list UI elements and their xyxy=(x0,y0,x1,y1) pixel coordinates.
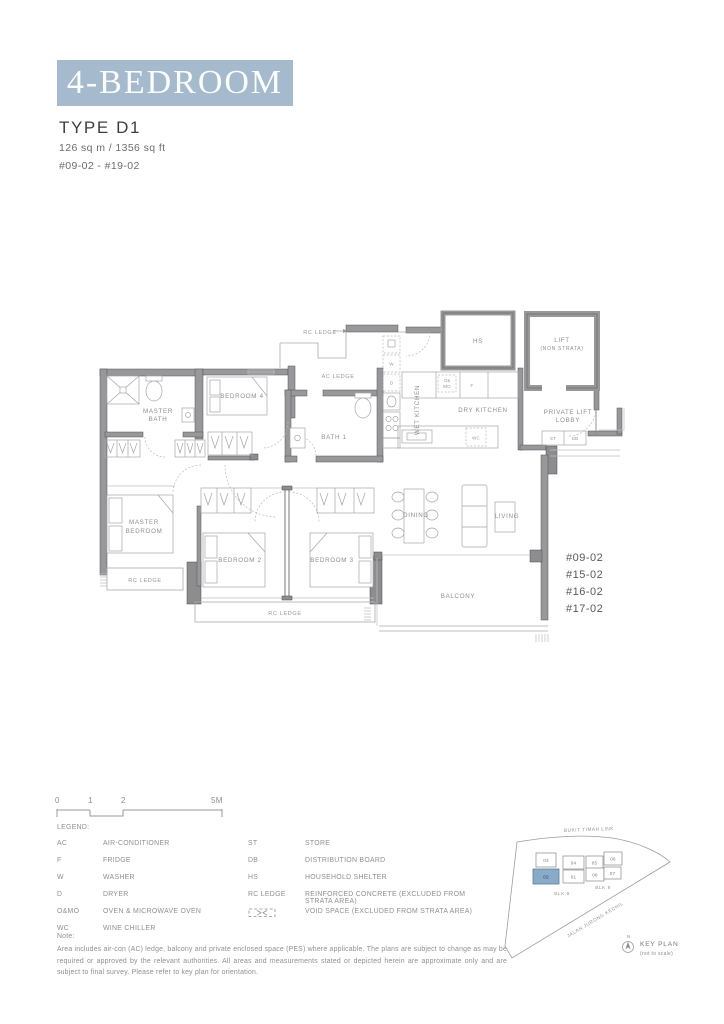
svg-text:02: 02 xyxy=(543,875,549,880)
label-dryer: D xyxy=(390,381,393,386)
label-bedroom2: BEDROOM 2 xyxy=(218,557,261,564)
label-rc-ledge-left: RC LEDGE xyxy=(128,578,161,584)
label-wet-kitchen: WET KITCHEN xyxy=(414,385,421,435)
label-dry-kitchen: DRY KITCHEN xyxy=(458,407,507,414)
scale-1: 1 xyxy=(88,796,93,805)
wet-kitchen-appliances xyxy=(383,336,400,448)
type-title: TYPE D1 xyxy=(59,118,141,138)
north-label: N xyxy=(627,934,631,940)
legend-row: DBDISTRIBUTION BOARD xyxy=(248,857,488,874)
site-boundary xyxy=(505,836,670,958)
hatch-bedroom3 xyxy=(364,608,371,620)
label-store: ST xyxy=(550,436,556,441)
label-bedroom3: BEDROOM 3 xyxy=(310,557,353,564)
basin-icon xyxy=(182,408,194,422)
svg-text:#16-02: #16-02 xyxy=(566,586,603,598)
label-balcony: BALCONY xyxy=(441,593,475,600)
label-bedroom4: BEDROOM 4 xyxy=(220,393,263,400)
lift-shaft xyxy=(527,314,597,392)
note: Note: Area includes air-con (AC) ledge, … xyxy=(57,931,507,979)
svg-text:#15-02: #15-02 xyxy=(566,569,603,581)
scale-0: 0 xyxy=(55,796,60,805)
floor-plan: MASTER BATH BEDROOM 4 BATH 1 WET KITCHEN… xyxy=(80,300,660,660)
key-plan: BUKIT TIMAH LINK JALAN JURONG KECHIL 03 … xyxy=(492,800,722,986)
toilet-icon xyxy=(355,398,371,418)
label-hs: HS xyxy=(473,338,483,345)
svg-text:#17-02: #17-02 xyxy=(566,603,603,615)
lift-door-gap xyxy=(542,384,566,392)
basin-icon xyxy=(290,428,305,448)
legend-row: VOID SPACE (EXCLUDED FROM STRATA AREA) xyxy=(248,908,488,925)
svg-text:04: 04 xyxy=(571,861,577,866)
label-bath1: BATH 1 xyxy=(321,434,346,441)
legend-right-column: STSTORE DBDISTRIBUTION BOARD HSHOUSEHOLD… xyxy=(248,840,488,925)
area-text: 126 sq m / 1356 sq ft xyxy=(59,142,165,154)
label-rc-ledge-bottom: RC LEDGE xyxy=(268,611,301,617)
legend-row: HSHOUSEHOLD SHELTER xyxy=(248,874,488,891)
note-body: Area includes air-con (AC) ledge, balcon… xyxy=(57,944,507,978)
svg-text:07: 07 xyxy=(610,871,616,876)
legend-row: DDRYER xyxy=(57,891,242,908)
label-ac-ledge: AC LEDGE xyxy=(321,374,354,380)
legend-row: ACAIR-CONDITIONER xyxy=(57,840,242,857)
svg-text:#09-02: #09-02 xyxy=(566,552,603,564)
toilet-icon xyxy=(146,381,162,401)
svg-text:LOBBY: LOBBY xyxy=(556,417,580,424)
label-wine-chiller: WC xyxy=(472,436,480,441)
stack-unit-numbers: #09-02 #15-02 #16-02 #17-02 xyxy=(566,552,603,615)
bedroom4-furniture xyxy=(207,377,267,455)
label-washer: W xyxy=(389,362,394,367)
units-range-text: #09-02 - #19-02 xyxy=(59,160,140,172)
label-fridge: F xyxy=(471,383,474,388)
sofa-icon xyxy=(462,485,487,547)
svg-text:08: 08 xyxy=(592,873,598,878)
svg-text:01: 01 xyxy=(571,875,577,880)
svg-text:(NON STRATA): (NON STRATA) xyxy=(540,346,583,352)
hob-icon xyxy=(383,412,400,438)
label-dining: DINING xyxy=(403,512,429,519)
legend-row: FFRIDGE xyxy=(57,857,242,874)
scale-bar: 0 1 2 5M xyxy=(50,792,240,824)
keyplan-caption: KEY PLAN xyxy=(640,941,679,948)
label-lift: LIFT xyxy=(554,337,570,344)
svg-text:MO: MO xyxy=(443,384,451,389)
svg-text:BATH: BATH xyxy=(149,416,168,423)
note-title: Note: xyxy=(57,931,507,942)
bedroom2-furniture xyxy=(201,488,265,587)
wardrobe-icon xyxy=(201,488,251,513)
label-omo: O& xyxy=(444,378,451,383)
floorplan-page: 4-BEDROOM TYPE D1 126 sq m / 1356 sq ft … xyxy=(0,0,724,1024)
unit-type-banner: 4-BEDROOM xyxy=(57,60,293,106)
hatch-left xyxy=(100,574,107,586)
label-living: LIVING xyxy=(495,513,520,520)
svg-text:BEDROOM: BEDROOM xyxy=(126,528,163,535)
label-blk8: BLK 8 xyxy=(595,885,611,891)
north-indicator: N xyxy=(623,934,634,953)
label-rc-ledge-top: RC LEDGE xyxy=(303,330,336,336)
void-space-symbol xyxy=(248,908,305,918)
label-db: DB xyxy=(572,436,579,441)
keyplan-blocks: 03 04 05 06 02 01 08 07 xyxy=(533,852,622,884)
svg-text:05: 05 xyxy=(592,861,598,866)
label-master-bedroom: MASTER xyxy=(129,519,159,526)
svg-text:03: 03 xyxy=(543,858,549,863)
wardrobe-icon xyxy=(175,440,205,457)
legend-row: WWASHER xyxy=(57,874,242,891)
scale-5m: 5M xyxy=(211,796,223,805)
label-blk6: BLK 6 xyxy=(554,891,570,897)
north-arrow-icon xyxy=(625,942,630,950)
label-lobby: PRIVATE LIFT xyxy=(544,409,592,416)
road-bukit-timah-link: BUKIT TIMAH LINK xyxy=(564,826,615,834)
legend-row: STSTORE xyxy=(248,840,488,857)
master-bath-wardrobes xyxy=(105,440,205,457)
lobby-fixtures xyxy=(542,431,586,445)
hatch-balcony xyxy=(536,634,548,642)
banner-title: 4-BEDROOM xyxy=(67,64,283,102)
label-master-bath: MASTER xyxy=(143,408,173,415)
scale-2: 2 xyxy=(121,796,126,805)
legend-row: RC LEDGEREINFORCED CONCRETE (EXCLUDED FR… xyxy=(248,891,488,908)
keyplan-caption-sub: (not to scale) xyxy=(640,951,673,957)
svg-text:06: 06 xyxy=(610,857,616,862)
bedroom-divider xyxy=(282,486,292,600)
bedroom3-furniture xyxy=(310,488,374,587)
legend-left-column: ACAIR-CONDITIONER FFRIDGE WWASHER DDRYER… xyxy=(57,840,242,942)
legend-row: O&MOOVEN & MICROWAVE OVEN xyxy=(57,908,242,925)
sink-icon xyxy=(383,393,400,410)
